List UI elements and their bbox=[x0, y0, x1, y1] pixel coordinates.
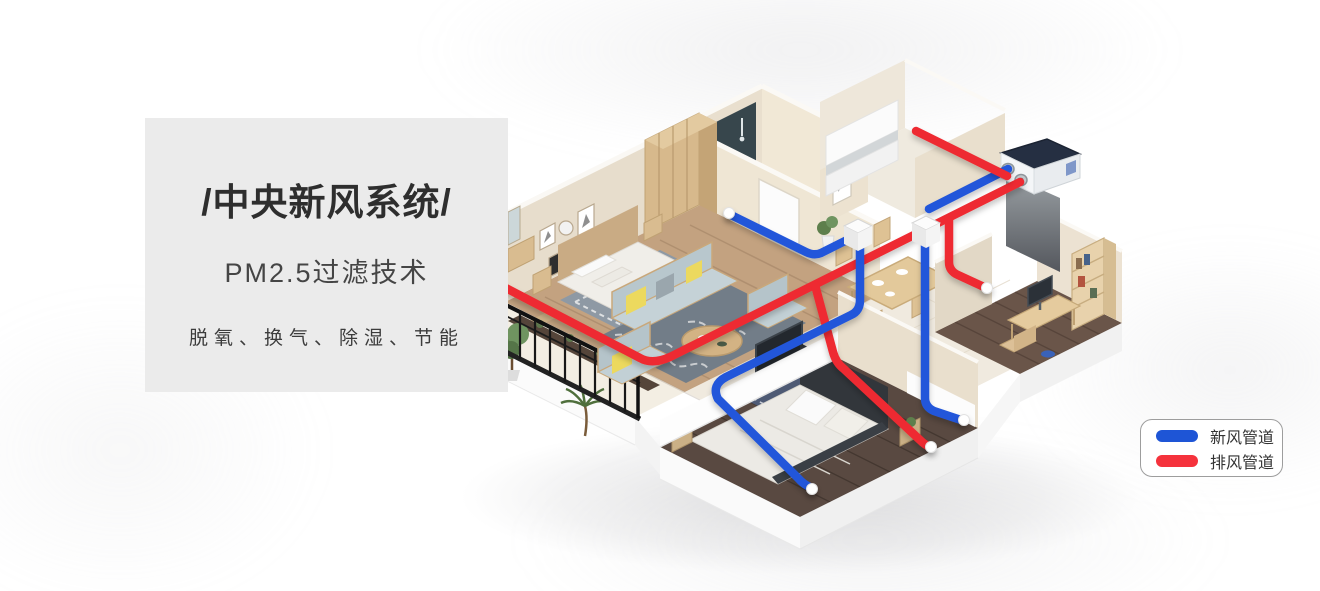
banner: /中央新风系统/ PM2.5过滤技术 脱氧、换气、除湿、节能 新风管道 排风管道 bbox=[0, 0, 1320, 591]
page-title: /中央新风系统/ bbox=[145, 172, 508, 226]
bookshelf bbox=[1072, 238, 1116, 330]
legend-label-exhaust: 排风管道 bbox=[1210, 449, 1274, 473]
vent-outlet bbox=[926, 442, 937, 453]
vent-outlet bbox=[724, 208, 735, 219]
hero-subtitle: PM2.5过滤技术 bbox=[145, 251, 508, 290]
coffee-table bbox=[682, 326, 742, 356]
vent-outlet bbox=[959, 415, 970, 426]
legend-row-fresh: 新风管道 bbox=[1155, 425, 1282, 447]
legend-label-fresh: 新风管道 bbox=[1210, 424, 1274, 448]
vent-outlet bbox=[807, 484, 818, 495]
pipe-legend: 新风管道 排风管道 bbox=[1140, 419, 1283, 477]
legend-row-exhaust: 排风管道 bbox=[1155, 450, 1282, 472]
exhaust-pipe-swatch bbox=[1155, 454, 1199, 468]
hero-panel: /中央新风系统/ PM2.5过滤技术 脱氧、换气、除湿、节能 bbox=[145, 118, 508, 392]
hero-features: 脱氧、换气、除湿、节能 bbox=[145, 323, 508, 350]
fresh-pipe-swatch bbox=[1155, 429, 1199, 443]
robot-vacuum bbox=[1041, 350, 1055, 357]
vent-outlet bbox=[982, 283, 993, 294]
pipe-junction-box bbox=[912, 216, 940, 248]
